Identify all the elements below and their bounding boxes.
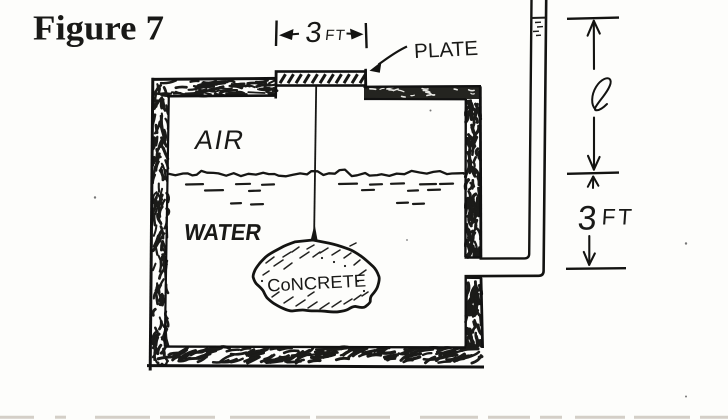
svg-text:Figure 7: Figure 7 [33,9,164,48]
svg-text:FT: FT [601,205,637,230]
svg-text:PLATE: PLATE [413,37,478,63]
svg-text:3: 3 [576,200,598,238]
svg-text:AIR: AIR [193,124,248,155]
svg-text:3: 3 [304,17,323,49]
svg-text:FT: FT [324,27,346,44]
svg-text:WATER: WATER [183,219,264,245]
